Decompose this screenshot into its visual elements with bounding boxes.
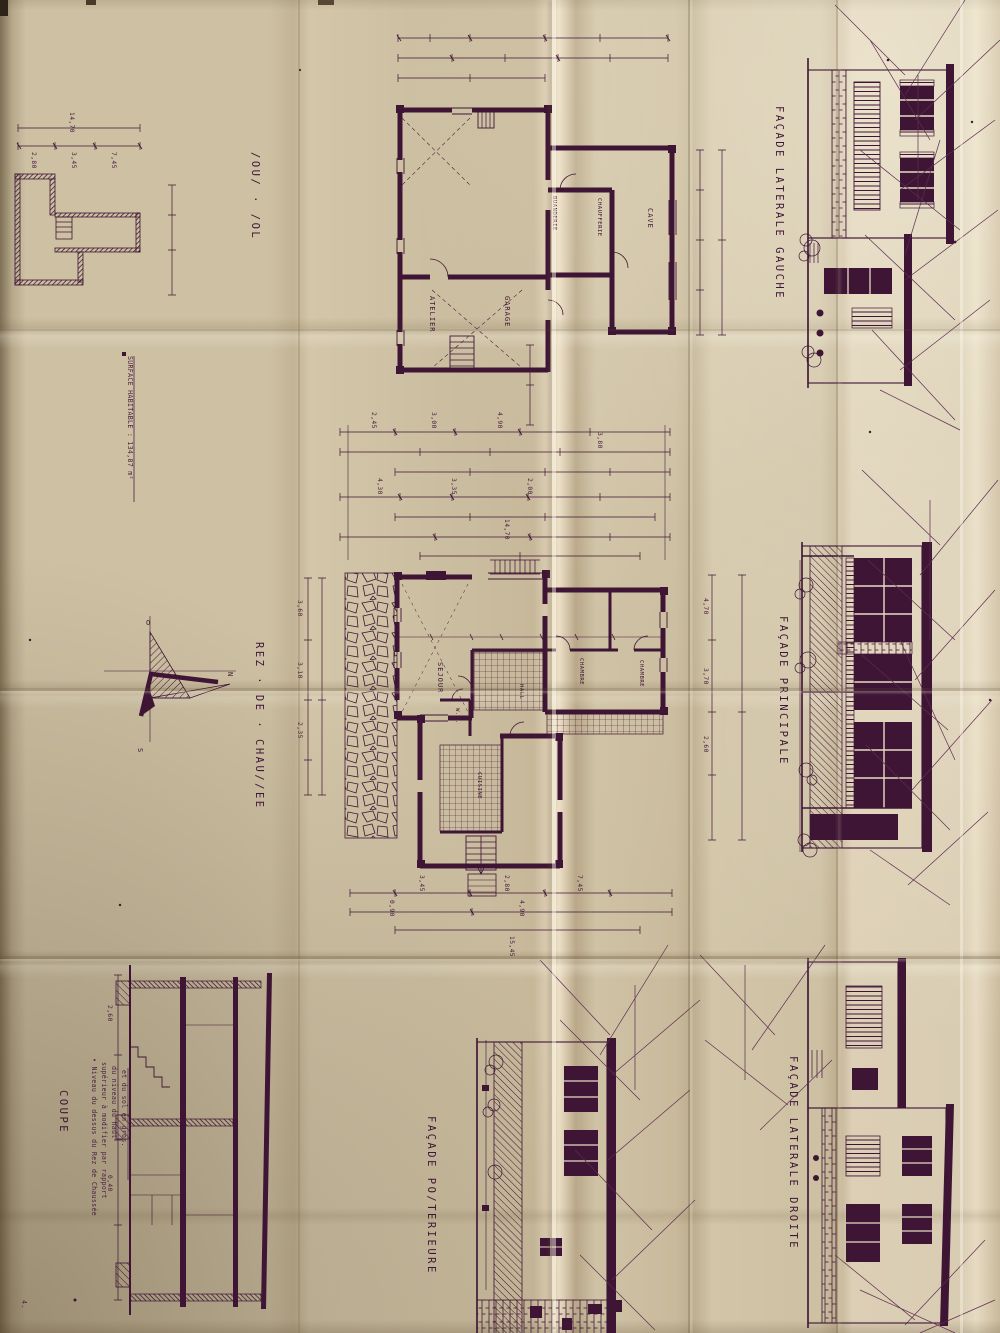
dim-label: 3,00 <box>430 412 437 429</box>
room-label-buanderie: BUANDERIE <box>551 196 557 231</box>
room-label-garage: GARAGE <box>503 296 511 327</box>
dim-label: 3,80 <box>596 432 603 449</box>
dim-label: 4,70 <box>702 598 709 615</box>
corner-mark: 4. <box>20 1300 28 1309</box>
ink-drawing: 14,70 2,80 3,45 7,45 /OU/ · /OL SURFACE … <box>0 0 1000 1333</box>
room-label-chambre-1: CHAMBRE <box>578 658 584 685</box>
dim-label: 4,90 <box>496 412 503 429</box>
note-bullet <box>122 352 126 356</box>
stone-terrace <box>345 573 397 838</box>
coupe-note-line: et du sol en gros. <box>120 1070 128 1147</box>
room-label-wc: W.C. <box>454 708 460 723</box>
dim-label: 7,45 <box>110 152 117 169</box>
dim-label: 4,30 <box>376 478 383 495</box>
room-label-chambre-2: CHAMBRE <box>638 660 644 687</box>
coupe-note: • Niveau du dessus du Rez de Chaussée su… <box>90 1058 128 1216</box>
dim-label: 2,00 <box>526 478 533 495</box>
dim-label: 3,45 <box>70 152 77 169</box>
dim-label: 15,45 <box>508 936 515 957</box>
dim-label: 2,60 <box>702 736 709 753</box>
facade-principale-title: FAÇADE PRINCIPALE <box>777 616 789 766</box>
dim-label: 14,70 <box>503 519 510 540</box>
facade-laterale-gauche <box>808 58 954 388</box>
dim-label: 3,35 <box>450 478 457 495</box>
rez-de-chaussee-title: REZ · DE · CHAU//EE <box>253 642 265 810</box>
facade-laterale-droite-title: FAÇADE LATERALE DROITE <box>787 1056 799 1250</box>
coupe-title: COUPE <box>57 1090 69 1134</box>
dim-label: 2,35 <box>296 722 303 739</box>
compass-west: O <box>146 619 151 627</box>
dim-label: 2,80 <box>503 875 510 892</box>
facade-posterieure <box>477 1038 622 1333</box>
compass <box>104 616 236 742</box>
compass-south: S <box>136 748 144 753</box>
room-label-cave: CAVE <box>646 208 654 229</box>
sous-sol-mini-plan <box>15 124 176 295</box>
coupe-note-line: du niveau du haut <box>110 1066 118 1139</box>
facade-laterale-droite <box>808 958 954 1328</box>
coupe-section <box>116 965 272 1315</box>
room-label-hall: HALL <box>518 684 524 700</box>
sous-sol-title: /OU/ · /OL <box>249 152 261 240</box>
facade-laterale-gauche-title: FAÇADE LATERALE GAUCHE <box>773 106 785 300</box>
dim-label: 7,45 <box>576 875 583 892</box>
dim-label: 4,90 <box>518 900 525 917</box>
dim-label: 2,80 <box>30 152 37 169</box>
dim-label: 2,45 <box>370 412 377 429</box>
dim-label: 3,10 <box>296 662 303 679</box>
room-label-cuisine: CUISINE <box>476 772 482 799</box>
dim-label: 3,45 <box>418 875 425 892</box>
surface-note: SURFACE HABITABLE : 134,87 m² <box>126 356 134 480</box>
facade-posterieure-title: FAÇADE PO/TERIEURE <box>425 1116 437 1275</box>
room-label-chaufferie: CHAUFFERIE <box>596 198 602 237</box>
facade-principale <box>802 542 932 852</box>
coupe-note-line: supérieur à modifier par rapport <box>100 1062 108 1199</box>
blueprint-photo: 14,70 2,80 3,45 7,45 /OU/ · /OL SURFACE … <box>0 0 1000 1333</box>
compass-north: N <box>226 672 234 677</box>
room-label-sejour: SEJOUR <box>436 662 444 693</box>
tree-sketch-top-right <box>835 0 1000 430</box>
sous-sol-plan <box>396 34 726 425</box>
dim-label: 2,60 <box>106 1005 113 1022</box>
coupe-note-line: • Niveau du dessus du Rez de Chaussée <box>90 1058 98 1216</box>
rez-de-chaussee-plan <box>304 560 746 934</box>
dim-label: 3,70 <box>702 668 709 685</box>
dim-label: 14,70 <box>68 112 75 133</box>
dim-label: 3,60 <box>296 600 303 617</box>
dim-label: 0,90 <box>388 900 395 917</box>
room-label-atelier: ATELIER <box>428 296 436 333</box>
